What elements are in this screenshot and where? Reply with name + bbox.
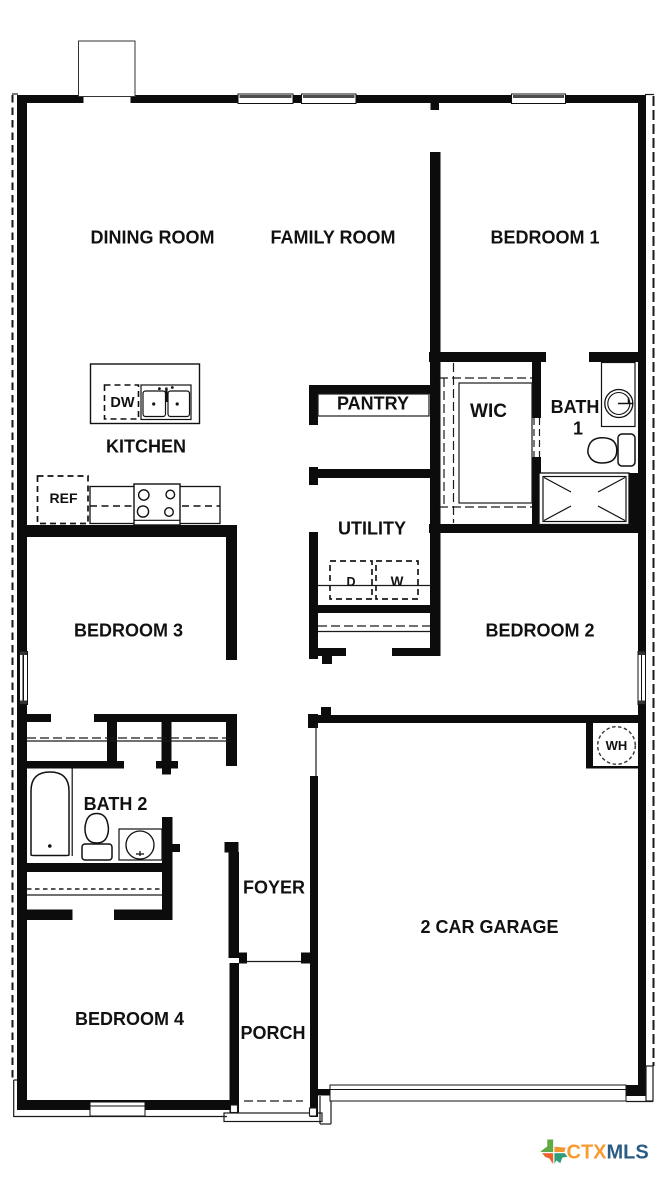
svg-text:WIC: WIC: [470, 401, 507, 422]
svg-text:BEDROOM 3: BEDROOM 3: [74, 621, 183, 641]
svg-text:FAMILY ROOM: FAMILY ROOM: [270, 228, 395, 248]
svg-text:REF: REF: [50, 490, 78, 506]
svg-text:DW: DW: [110, 395, 134, 411]
svg-text:FOYER: FOYER: [243, 878, 305, 898]
svg-text:D: D: [346, 575, 355, 589]
svg-text:BEDROOM 4: BEDROOM 4: [75, 1009, 184, 1029]
svg-text:BATH 2: BATH 2: [84, 794, 148, 814]
svg-text:BEDROOM 1: BEDROOM 1: [490, 228, 599, 248]
svg-text:1: 1: [573, 419, 583, 439]
svg-text:W: W: [391, 574, 404, 589]
svg-text:2 CAR GARAGE: 2 CAR GARAGE: [420, 917, 558, 937]
svg-text:CTXMLS: CTXMLS: [567, 1142, 649, 1164]
svg-text:PORCH: PORCH: [240, 1023, 305, 1043]
svg-text:PANTRY: PANTRY: [337, 394, 409, 414]
svg-text:UTILITY: UTILITY: [338, 519, 406, 539]
svg-text:BEDROOM 2: BEDROOM 2: [485, 621, 594, 641]
svg-text:WH: WH: [606, 738, 628, 753]
svg-text:BATH: BATH: [551, 397, 600, 417]
svg-text:DINING ROOM: DINING ROOM: [91, 228, 215, 248]
svg-text:KITCHEN: KITCHEN: [106, 437, 186, 457]
